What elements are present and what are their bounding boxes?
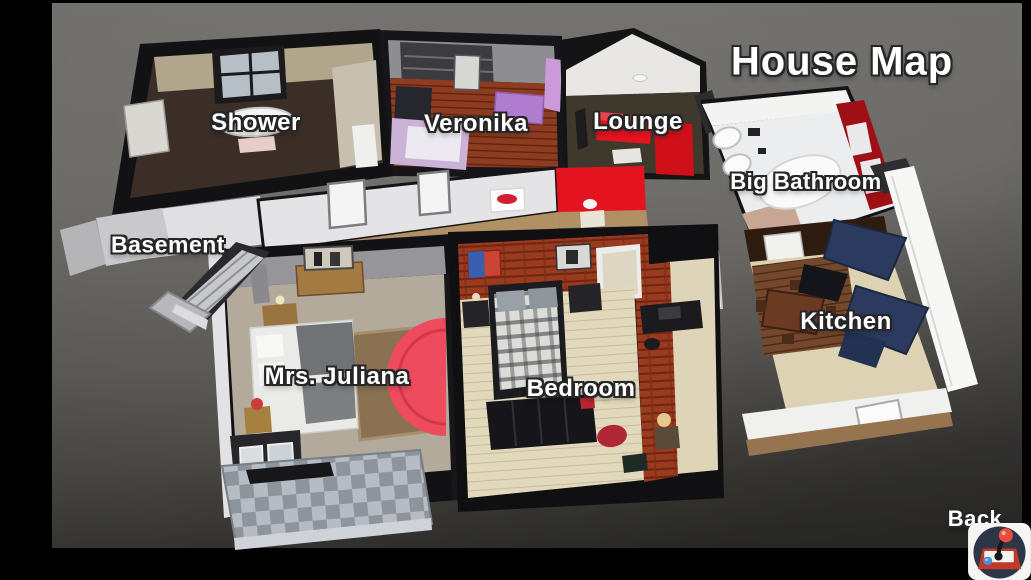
arcade-joystick-graphic <box>968 523 1031 580</box>
room-label-kitchen[interactable]: Kitchen <box>800 308 892 336</box>
map-overlay: House Map Shower Veronika Lounge Big Bat… <box>0 0 1031 580</box>
room-label-basement[interactable]: Basement <box>111 232 225 259</box>
room-label-lounge[interactable]: Lounge <box>593 108 683 136</box>
arcade-joystick-icon[interactable] <box>968 523 1031 580</box>
page-title: House Map <box>731 40 953 85</box>
room-label-shower[interactable]: Shower <box>211 109 301 137</box>
room-label-veronika[interactable]: Veronika <box>424 110 528 138</box>
room-label-mrs-juliana[interactable]: Mrs. Juliana <box>265 363 410 391</box>
house-map-screen: House Map Shower Veronika Lounge Big Bat… <box>0 0 1031 580</box>
room-label-bedroom[interactable]: Bedroom <box>527 375 636 403</box>
room-label-big-bathroom[interactable]: Big Bathroom <box>730 169 881 195</box>
